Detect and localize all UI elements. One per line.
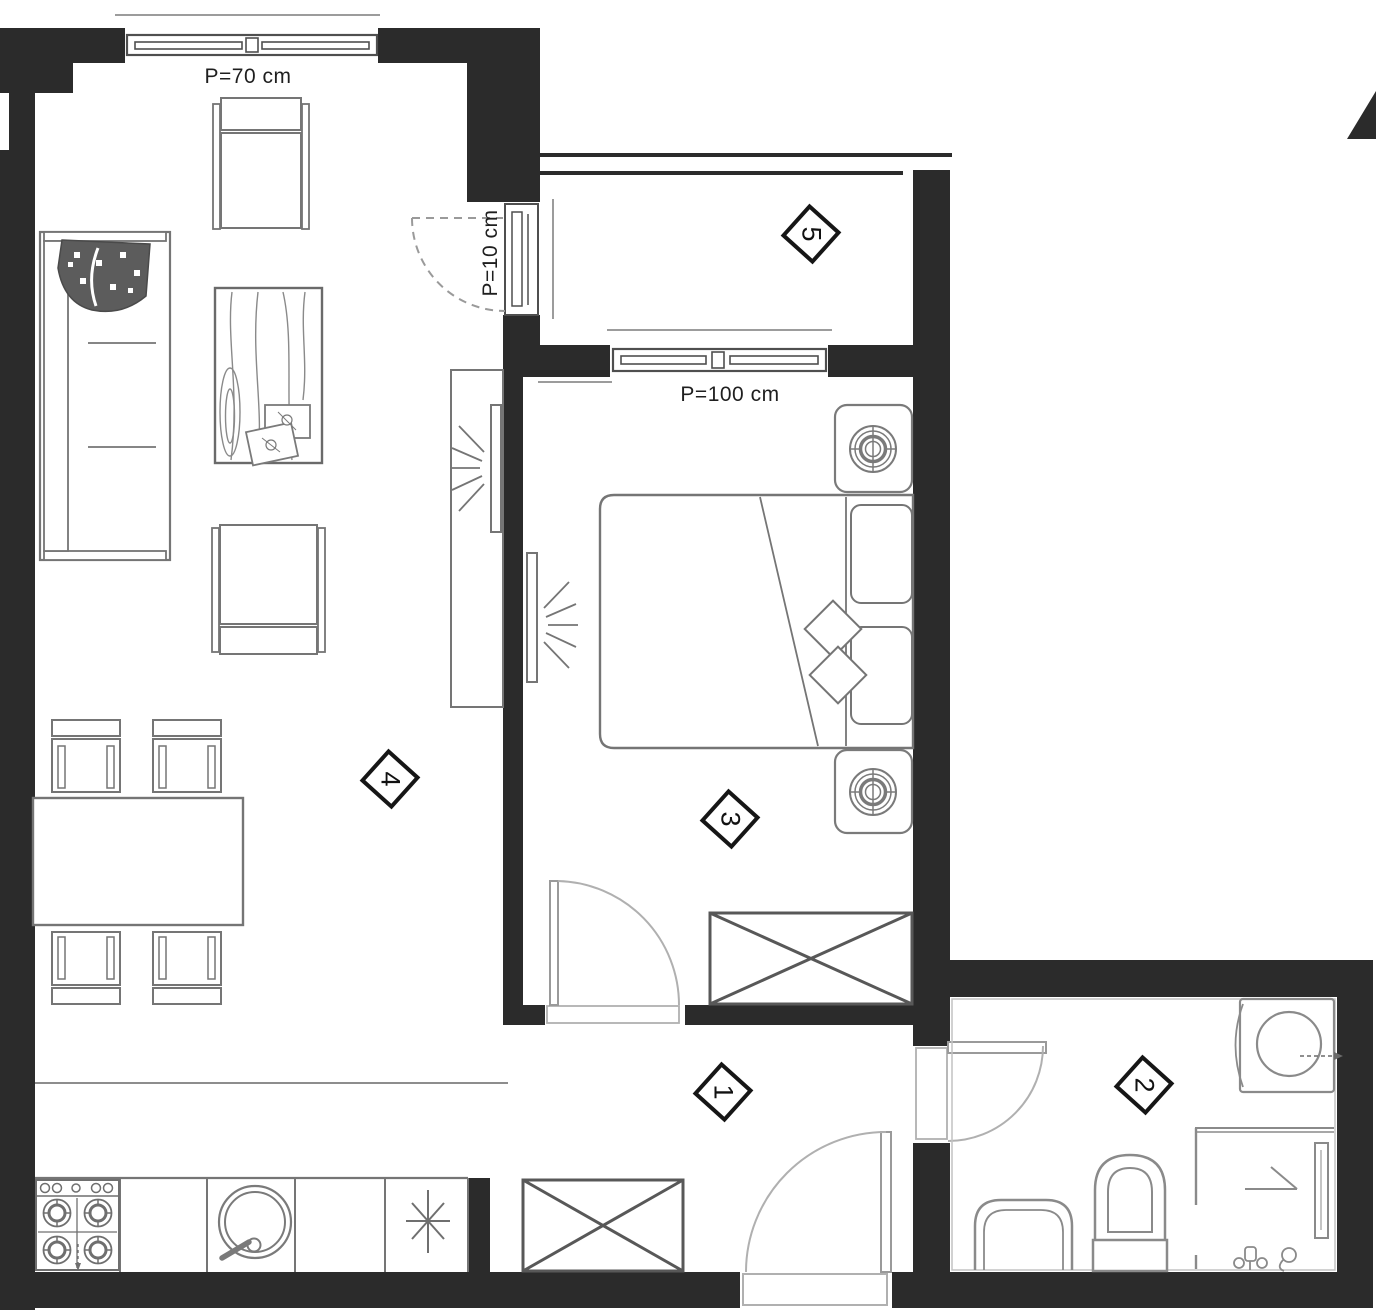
wall-left <box>0 28 35 1310</box>
shower <box>1195 1128 1334 1271</box>
sink <box>219 1186 291 1258</box>
wall-bottom-right <box>892 1272 1373 1308</box>
wall-bottom-left <box>0 1272 740 1308</box>
washbasin <box>975 1200 1072 1270</box>
armchair-bottom <box>212 525 325 654</box>
wall-top-left <box>0 28 125 63</box>
room-number: 1 <box>710 1084 737 1099</box>
floor-plan: P=70 cm P=10 cm P=100 cm 1 2 3 4 5 <box>0 0 1376 1310</box>
wall-bathroom-right <box>1337 997 1373 1272</box>
wall-right-column-lower <box>913 1143 950 1272</box>
wall-niche <box>0 93 9 150</box>
tv-rays-icon <box>544 582 578 668</box>
bedroom-dresser <box>710 913 912 1004</box>
wall-bedroom-top-left <box>540 345 610 377</box>
room-number: 4 <box>377 771 404 786</box>
washing-machine <box>1236 999 1344 1092</box>
wall-block-top-right <box>467 63 540 202</box>
lamp-icon <box>850 769 896 815</box>
bathroom-door <box>916 1042 1046 1141</box>
window-p70 <box>127 35 377 55</box>
wall-top-right <box>378 28 540 63</box>
wall-kitchen-stub <box>468 1178 490 1272</box>
balcony-railing-outer <box>540 153 952 157</box>
pillow <box>851 505 912 603</box>
bathroom <box>952 999 1343 1271</box>
burner-icon <box>43 1236 71 1264</box>
north-triangle-mark <box>1347 91 1376 139</box>
window-p100-label: P=100 cm <box>680 383 779 407</box>
wall-bathroom-top <box>950 960 1373 997</box>
room-number: 5 <box>798 226 825 241</box>
bedroom-door <box>547 881 679 1023</box>
toilet <box>1093 1155 1167 1271</box>
dishwasher-star-icon <box>406 1190 450 1253</box>
room-number: 2 <box>1131 1077 1158 1092</box>
balcony-door-p10-label: P=10 cm <box>479 210 503 297</box>
drain-slope-arrow-icon <box>1245 1167 1297 1189</box>
burner-icon <box>84 1199 112 1227</box>
bedroom-door-swing-arc <box>558 881 679 1005</box>
chair-top-left <box>52 720 120 792</box>
chair-bottom-right <box>153 932 221 1004</box>
dining-table <box>33 798 243 925</box>
lamp-icon <box>850 426 896 472</box>
wall-bedroom-top-right <box>828 345 913 377</box>
room-number: 3 <box>717 811 744 826</box>
wall-right-column <box>913 170 950 1046</box>
chair-top-right <box>153 720 221 792</box>
kitchen <box>35 1083 508 1272</box>
hand-shower-icon <box>1280 1248 1296 1271</box>
balcony-door-p10 <box>412 204 538 315</box>
wall-below-balcony-door <box>503 315 540 377</box>
wall-bedroom-bottom <box>685 1005 913 1025</box>
bed <box>600 495 913 748</box>
burner-icon <box>43 1199 71 1227</box>
window-p70-label: P=70 cm <box>205 65 292 89</box>
chair-bottom-left <box>52 932 120 1004</box>
armchair-top <box>213 98 309 229</box>
balcony-railing-inner <box>540 171 903 175</box>
stove <box>36 1180 119 1271</box>
window-p100 <box>613 349 826 371</box>
wall-living-bedroom-divider <box>503 377 523 1005</box>
coffee-table <box>215 288 322 465</box>
tv-bedroom <box>527 553 578 682</box>
nightstand-top <box>835 405 912 492</box>
bathroom-door-swing-arc <box>948 1046 1043 1141</box>
entrance-door-swing-arc <box>746 1132 886 1272</box>
floor-plan-drawing <box>0 0 1376 1310</box>
entrance-door <box>740 1132 891 1308</box>
shower-mixer-icon <box>1234 1247 1267 1270</box>
hallway-wardrobe <box>523 1180 683 1271</box>
wall-corner-step <box>35 63 73 93</box>
nightstand-bottom <box>835 750 912 833</box>
wall-divider-stub <box>503 1005 545 1025</box>
burner-icon <box>84 1236 112 1264</box>
